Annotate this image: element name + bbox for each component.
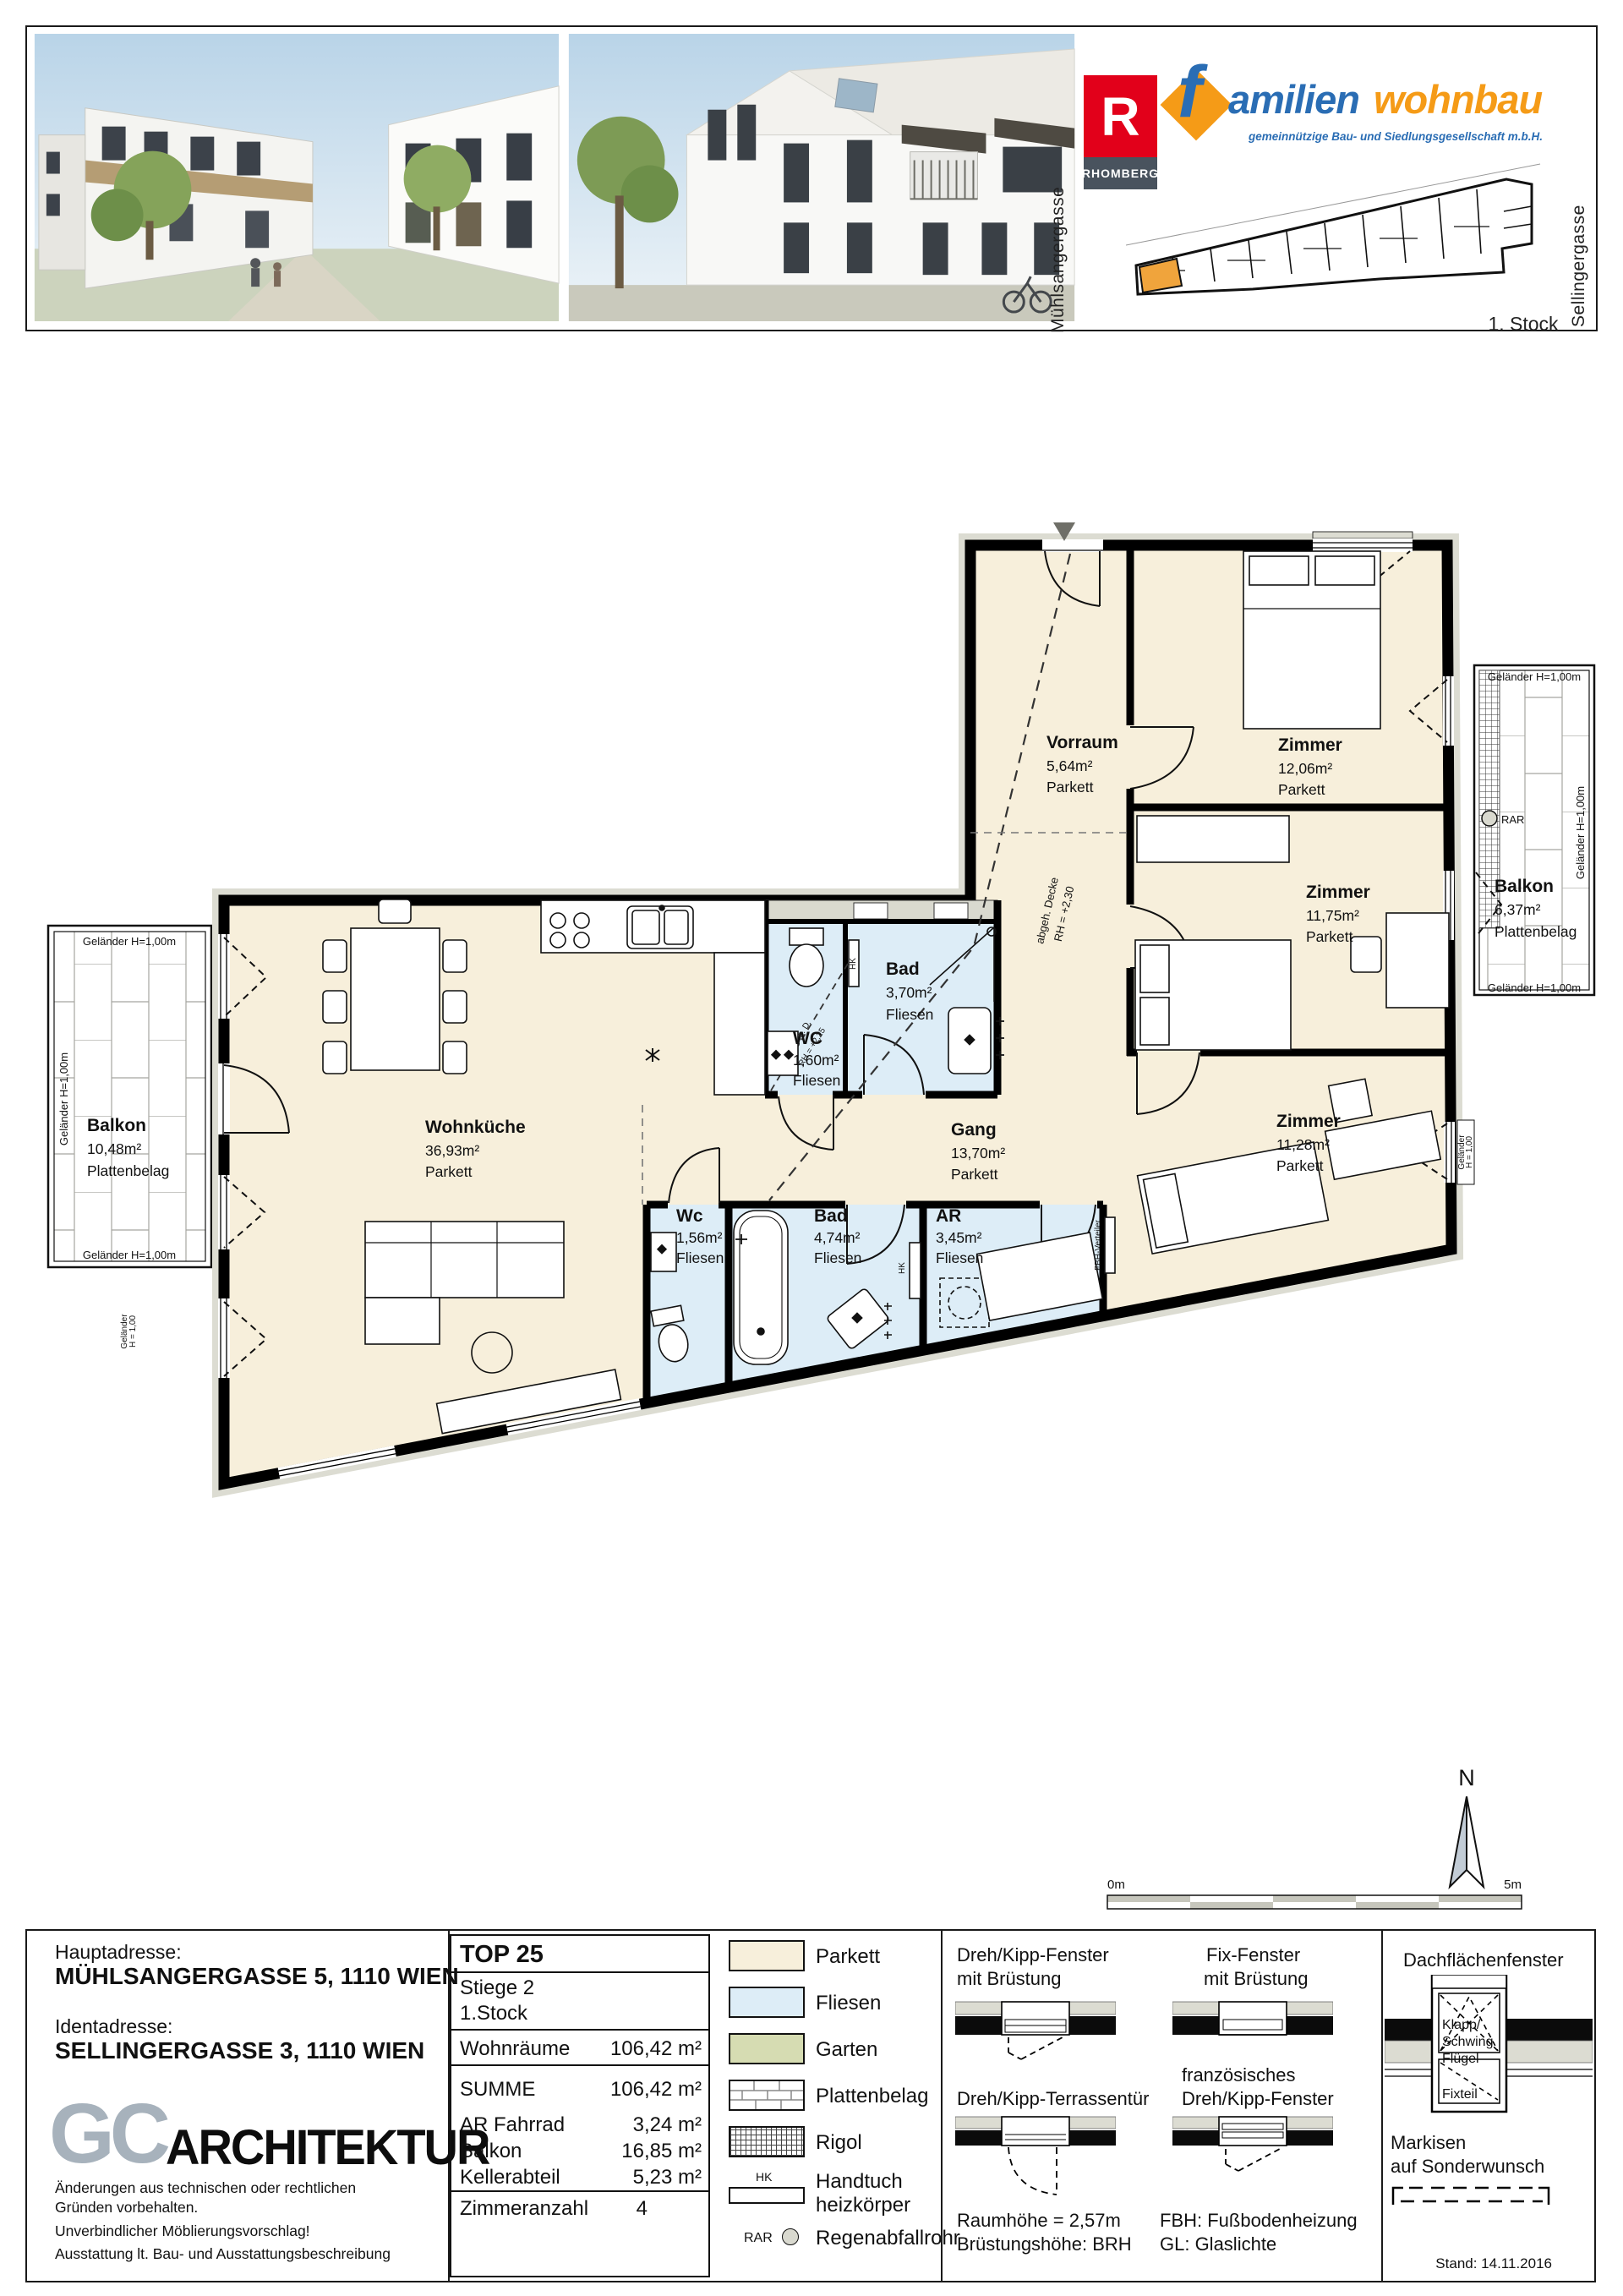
title-block: Hauptadresse: MÜHLSANGERGASSE 5, 1110 WI…	[25, 1929, 1596, 2282]
floor-label: 1. Stock	[1430, 313, 1616, 336]
svg-text:Fliesen: Fliesen	[676, 1249, 724, 1266]
legend-rar-icon	[782, 2228, 799, 2245]
svg-text:Fliesen: Fliesen	[814, 1249, 861, 1266]
svg-text:Klapp/: Klapp/	[1442, 2018, 1481, 2032]
legend-swatch-parkett	[729, 1940, 805, 1971]
svg-text:Parkett: Parkett	[951, 1166, 998, 1183]
svg-text:Parkett: Parkett	[425, 1163, 473, 1180]
svg-text:Balkon: Balkon	[87, 1116, 146, 1135]
svg-text:12,06m²: 12,06m²	[1278, 760, 1332, 777]
symbol-terrassentuer	[955, 2112, 1116, 2200]
balcony-right: Geländer H=1,00m Geländer H=1,00m Geländ…	[1474, 665, 1594, 995]
svg-text:Fliesen: Fliesen	[886, 1006, 933, 1023]
svg-text:Parkett: Parkett	[1046, 779, 1094, 795]
svg-text:HK: HK	[849, 958, 858, 970]
svg-text:5,64m²: 5,64m²	[1046, 757, 1093, 774]
street-label-muehlsangergasse: Mühlsangergasse	[1048, 79, 1068, 333]
svg-text:5m: 5m	[1504, 1878, 1522, 1892]
photo-rendering-building	[568, 34, 1075, 321]
scale-bar: 0m 5m	[1107, 1878, 1522, 1909]
legend-hk-icon	[729, 2187, 805, 2204]
svg-text:Wc: Wc	[676, 1206, 703, 1226]
gc-architektur-logo: GC ARCHITEKTUR	[49, 2098, 489, 2169]
svg-text:Geländer H=1,00m: Geländer H=1,00m	[1488, 670, 1581, 683]
disclaimer-line: Gründen vorbehalten.	[55, 2199, 198, 2217]
svg-text:11,75m²: 11,75m²	[1306, 907, 1359, 924]
svg-text:Geländer H=1,00m: Geländer H=1,00m	[1574, 786, 1587, 879]
svg-text:Fixteil: Fixteil	[1442, 2087, 1478, 2102]
table-row-summe: SUMME106,42 m²	[451, 2068, 708, 2113]
svg-text:H = 1,00: H = 1,00	[1465, 1136, 1474, 1169]
identadresse-label: Identadresse:	[55, 2015, 172, 2038]
svg-text:Zimmer: Zimmer	[1306, 883, 1370, 902]
svg-text:13,70m²: 13,70m²	[951, 1145, 1005, 1162]
svg-text:Geländer H=1,00m: Geländer H=1,00m	[83, 935, 176, 948]
svg-text:Bad: Bad	[814, 1206, 848, 1226]
svg-text:Parkett: Parkett	[1278, 781, 1325, 798]
street-label-sellingergasse: Sellingergasse	[1569, 74, 1589, 327]
table-row-balkon: Balkon16,85 m²	[451, 2140, 708, 2166]
disclaimer-line: Ausstattung lt. Bau- und Ausstattungsbes…	[55, 2245, 391, 2263]
svg-text:Zimmer: Zimmer	[1276, 1112, 1341, 1131]
svg-text:RAR: RAR	[1501, 813, 1524, 826]
disclaimer-line: Änderungen aus technischen oder rechtlic…	[55, 2179, 356, 2197]
symbol-dachflaechenfenster: Klapp/ Schwing Flügel Fixteil	[1385, 1975, 1593, 2120]
symbol-franzoesisches-fenster	[1172, 2112, 1333, 2200]
table-row-wohnraeume: Wohnräume106,42 m²	[451, 2032, 708, 2066]
hauptadresse-value: MÜHLSANGERGASSE 5, 1110 WIEN	[55, 1963, 459, 1990]
table-row-kellerabteil: Kellerabteil5,23 m²	[451, 2166, 708, 2192]
svg-text:0m: 0m	[1107, 1878, 1125, 1892]
legend-swatch-rigol	[729, 2126, 805, 2157]
symbol-dreh-kipp-fenster	[955, 1993, 1116, 2063]
svg-text:Gang: Gang	[951, 1120, 997, 1140]
svg-text:36,93m²: 36,93m²	[425, 1142, 479, 1159]
hauptadresse-label: Hauptadresse:	[55, 1941, 182, 1964]
svg-text:Flügel: Flügel	[1442, 2052, 1479, 2066]
site-plan-mini	[1126, 161, 1549, 317]
rar-icon	[1482, 811, 1497, 826]
table-row-zimmeranzahl: Zimmeranzahl4	[451, 2194, 708, 2228]
svg-text:1,56m²: 1,56m²	[676, 1229, 723, 1246]
identadresse-value: SELLINGERGASSE 3, 1110 WIEN	[55, 2037, 424, 2064]
svg-text:10,48m²: 10,48m²	[87, 1140, 141, 1157]
rhomberg-r-icon: R	[1084, 75, 1157, 157]
floor-plan: Geländer H=1,00m Geländer H=1,00m Geländ…	[0, 507, 1623, 1581]
table-row-stiege: Stiege 2 1.Stock	[451, 1975, 708, 2031]
legend-swatch-garten	[729, 2033, 805, 2064]
svg-text:1,60m²: 1,60m²	[793, 1052, 839, 1069]
svg-text:3,70m²: 3,70m²	[886, 984, 932, 1001]
legend-rar-label: RAR	[744, 2231, 773, 2246]
svg-text:Parkett: Parkett	[1276, 1157, 1324, 1174]
table-row-ar-fahrrad: AR Fahrrad3,24 m²	[451, 2113, 708, 2140]
svg-text:Fliesen: Fliesen	[936, 1249, 983, 1266]
svg-text:FBH-Verteiler: FBH-Verteiler	[1094, 1219, 1103, 1271]
photo-rendering-courtyard	[34, 34, 560, 321]
unit-data-table: TOP 25 Stiege 2 1.Stock Wohnräume106,42 …	[450, 1934, 710, 2277]
svg-text:Zimmer: Zimmer	[1278, 735, 1342, 755]
svg-text:Parkett: Parkett	[1306, 928, 1353, 945]
balcony-left: Geländer H=1,00m Geländer H=1,00m Geländ…	[48, 926, 211, 1267]
north-label: N	[1458, 1765, 1475, 1790]
table-row-top: TOP 25	[451, 1936, 708, 1973]
legend-hk-label: HK	[756, 2170, 772, 2184]
svg-text:H = 1,00: H = 1,00	[128, 1315, 138, 1348]
svg-text:11,28m²: 11,28m²	[1276, 1136, 1330, 1153]
svg-text:Geländer H=1,00m: Geländer H=1,00m	[83, 1249, 176, 1261]
divider	[1381, 1931, 1383, 2281]
symbol-markise	[1391, 2178, 1551, 2206]
svg-text:AR: AR	[936, 1206, 961, 1226]
svg-text:4,74m²: 4,74m²	[814, 1229, 861, 1246]
header-band: Mühlsangergasse R RHOMBERG f amilien woh…	[25, 25, 1598, 331]
svg-text:Wohnküche: Wohnküche	[425, 1118, 526, 1137]
symbol-fix-fenster	[1172, 1993, 1333, 2063]
svg-text:Bad: Bad	[886, 959, 920, 979]
svg-text:Balkon: Balkon	[1495, 877, 1554, 896]
svg-text:Plattenbelag: Plattenbelag	[1495, 923, 1577, 940]
north-arrow-icon	[1450, 1796, 1467, 1887]
legend-swatch-fliesen	[729, 1987, 805, 2018]
svg-text:Schwing: Schwing	[1442, 2035, 1493, 2049]
stand-date: Stand: 14.11.2016	[1435, 2255, 1552, 2272]
svg-text:Geländer H=1,00m: Geländer H=1,00m	[57, 1052, 70, 1145]
compass-and-scale: N 0m 5m	[1082, 1725, 1606, 1936]
svg-text:Vorraum: Vorraum	[1046, 733, 1118, 752]
svg-text:Geländer H=1,00m: Geländer H=1,00m	[1488, 981, 1581, 994]
familienwohnbau-logo: f amilien wohnbau gemeinnützige Bau- und…	[1164, 69, 1599, 154]
svg-text:Plattenbelag: Plattenbelag	[87, 1162, 169, 1179]
legend-swatch-plattenbelag	[729, 2080, 805, 2111]
disclaimer-line: Unverbindlicher Möblierungsvorschlag!	[55, 2222, 310, 2240]
svg-text:3,45m²: 3,45m²	[936, 1229, 982, 1246]
svg-text:Fliesen: Fliesen	[793, 1072, 840, 1089]
svg-text:WC: WC	[793, 1029, 822, 1048]
svg-text:HK: HK	[898, 1262, 907, 1274]
